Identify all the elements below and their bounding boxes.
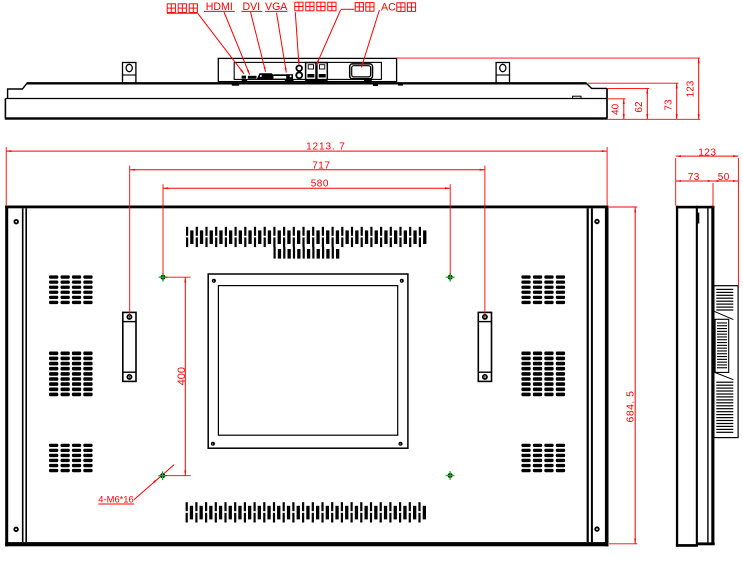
svg-text:400: 400 xyxy=(176,367,188,385)
svg-text:123: 123 xyxy=(686,80,697,97)
svg-text:684. 5: 684. 5 xyxy=(625,391,636,423)
svg-text:50: 50 xyxy=(718,172,730,183)
svg-text:62: 62 xyxy=(634,101,645,113)
svg-text:123: 123 xyxy=(698,147,716,158)
svg-text:73: 73 xyxy=(664,99,675,111)
svg-text:4-M6*16: 4-M6*16 xyxy=(98,493,133,504)
svg-text:1213. 7: 1213. 7 xyxy=(306,142,346,153)
svg-text:717: 717 xyxy=(312,160,330,171)
svg-text:AC: AC xyxy=(381,1,396,13)
svg-text:40: 40 xyxy=(611,103,622,115)
svg-text:580: 580 xyxy=(311,178,329,189)
svg-text:73: 73 xyxy=(688,172,700,183)
